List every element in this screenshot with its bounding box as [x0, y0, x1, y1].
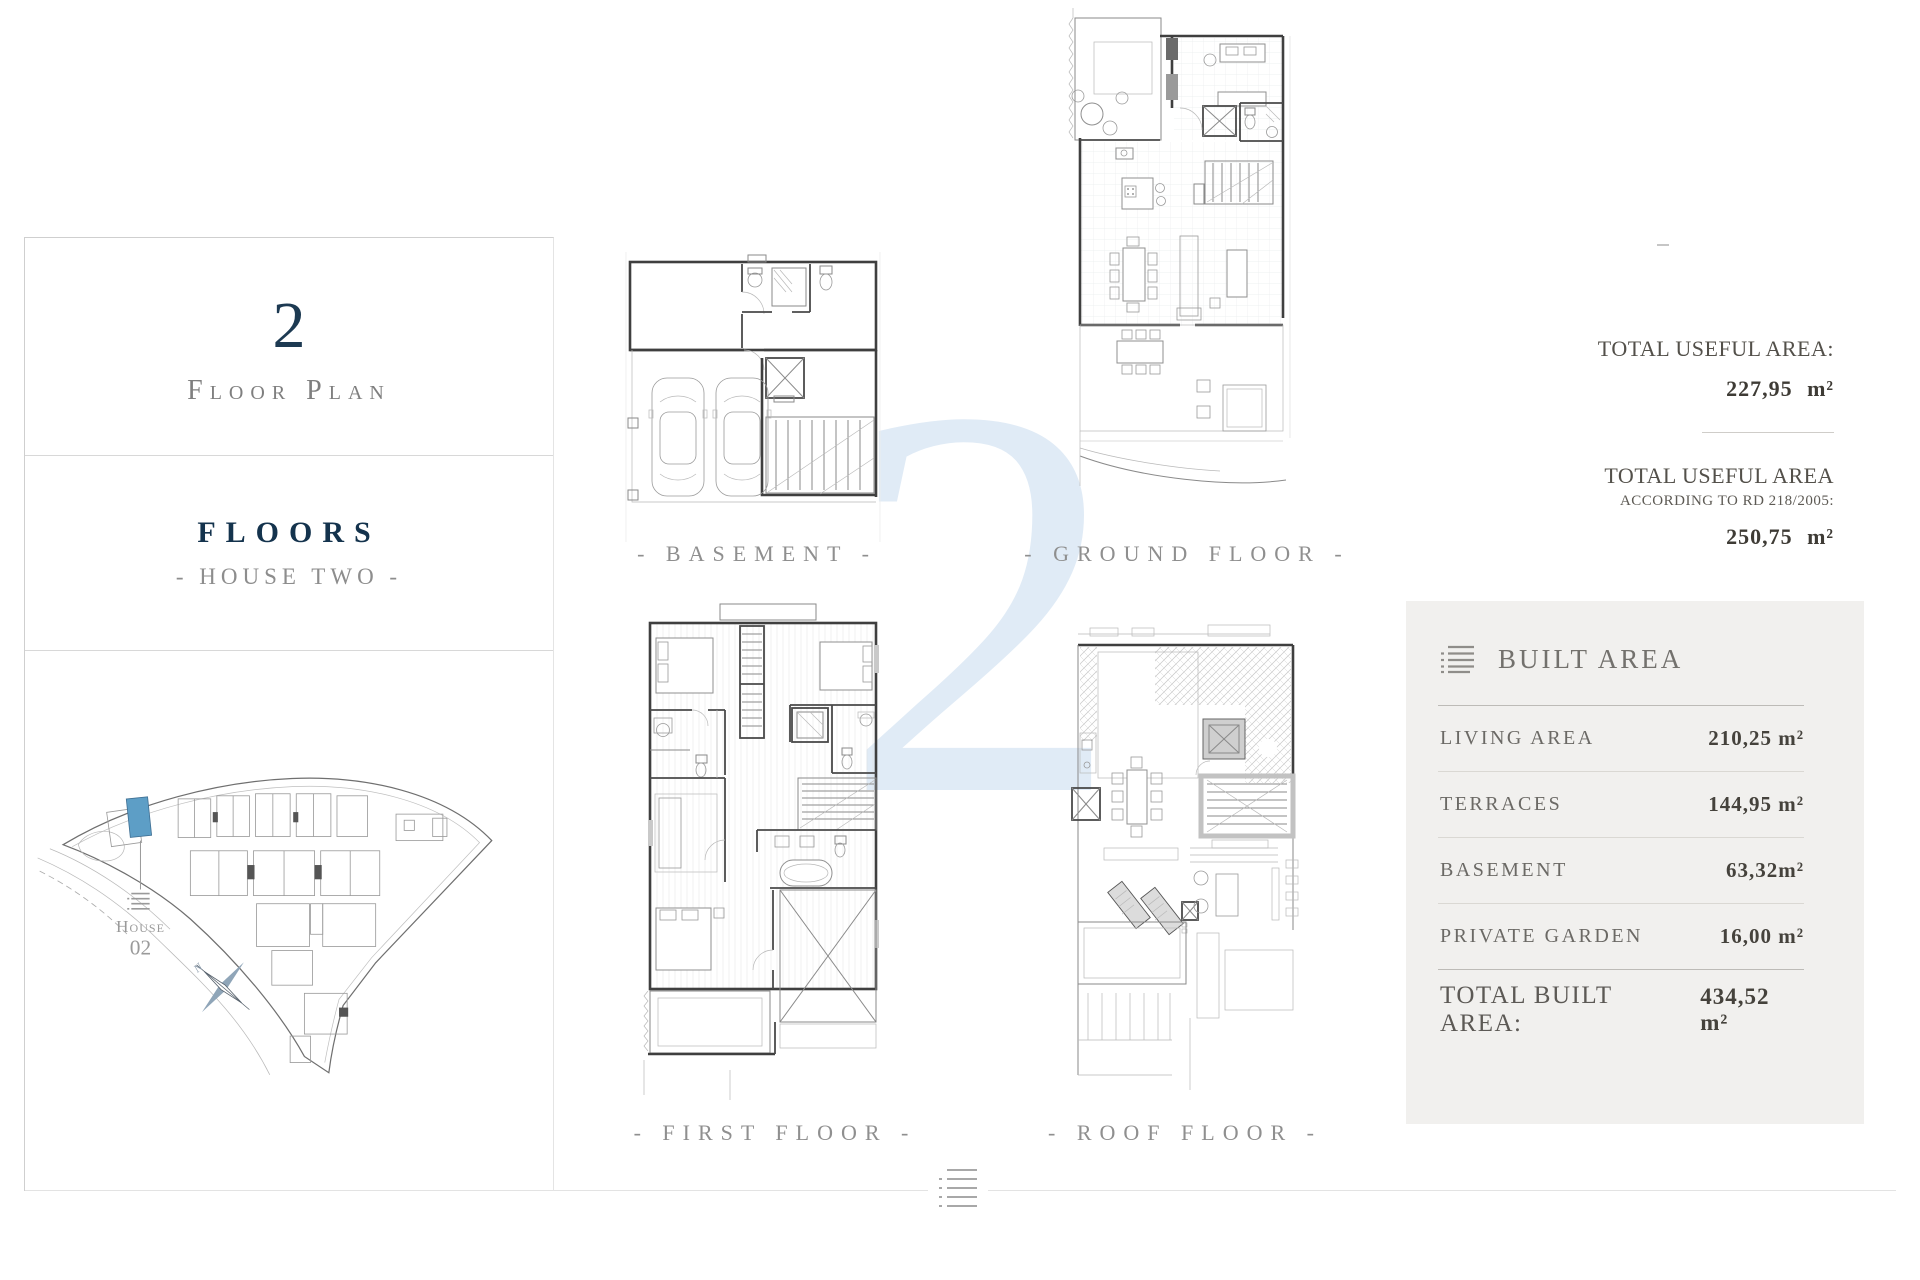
north-arrow-icon: N — [191, 960, 249, 1015]
terraces-value: 144,95 m² — [1708, 792, 1804, 817]
stats-divider — [1702, 432, 1834, 433]
site-units-row2 — [190, 851, 379, 896]
living-area-label: LIVING AREA — [1440, 727, 1595, 750]
sidebar-title-section: 2 Floor Plan — [25, 238, 553, 456]
built-area-panel: BUILT AREA LIVING AREA 210,25 m² TERRACE… — [1406, 601, 1864, 1124]
useful-area-rd-value: 250,75 m² — [1474, 524, 1834, 550]
decorative-dash — [1657, 244, 1669, 246]
built-area-row-terraces: TERRACES 144,95 m² — [1406, 772, 1864, 837]
floor-plan-subtitle: Floor Plan — [187, 375, 391, 407]
living-area-value: 210,25 m² — [1708, 726, 1804, 751]
built-area-row-basement: BASEMENT 63,32m² — [1406, 838, 1864, 903]
built-area-header: BUILT AREA — [1406, 601, 1864, 705]
private-garden-value: 16,00 m² — [1720, 924, 1804, 949]
ground-floor-label: - GROUND FLOOR - — [937, 541, 1437, 567]
total-built-area-value: 434,52 m² — [1700, 984, 1804, 1036]
house-02-highlight — [126, 797, 151, 838]
roof-floor-label: - ROOF FLOOR - — [935, 1120, 1435, 1146]
site-plan-drawing: House 02 N — [37, 751, 527, 1087]
private-garden-label: PRIVATE GARDEN — [1440, 925, 1643, 948]
built-area-row-living: LIVING AREA 210,25 m² — [1406, 706, 1864, 771]
terraces-label: TERRACES — [1440, 793, 1562, 816]
sidebar-floors-section: FLOORS - HOUSE TWO - — [25, 456, 553, 651]
total-useful-area-label: TOTAL USEFUL AREA: — [1474, 336, 1834, 362]
bottom-list-icon — [928, 1160, 988, 1218]
basement-area-label: BASEMENT — [1440, 859, 1568, 882]
sidebar-siteplan-section: House 02 N — [25, 651, 553, 1191]
roof-floor-plan — [1060, 620, 1310, 1120]
lounger-icon — [1141, 887, 1184, 934]
car-icon — [649, 378, 707, 496]
list-icon — [1440, 644, 1476, 674]
total-built-area-label: TOTAL BUILT AREA: — [1440, 982, 1700, 1038]
site-units-row3 — [257, 904, 376, 1063]
house-two-subtitle: - HOUSE TWO - — [176, 564, 402, 590]
first-floor-plan — [630, 590, 892, 1110]
useful-area-rd-sublabel: ACCORDING TO RD 218/2005: — [1474, 493, 1834, 510]
useful-area-stats: TOTAL USEFUL AREA: 227,95 m² TOTAL USEFU… — [1474, 336, 1834, 550]
basement-area-value: 63,32m² — [1726, 858, 1804, 883]
basement-floor-plan — [624, 252, 882, 552]
floor-plan-page: 2 2 Floor Plan FLOORS - HOUSE TWO - — [0, 0, 1920, 1280]
house-label: House — [116, 917, 165, 936]
floors-title: FLOORS — [197, 516, 380, 550]
ground-floor-plan — [1060, 8, 1300, 518]
total-useful-area-value: 227,95 m² — [1474, 376, 1834, 402]
site-units-row1 — [107, 794, 447, 847]
useful-area-rd-label: TOTAL USEFUL AREA — [1474, 463, 1834, 489]
house-number-title: 2 — [273, 293, 306, 359]
basement-label: - BASEMENT - — [507, 541, 1007, 567]
built-area-row-garden: PRIVATE GARDEN 16,00 m² — [1406, 904, 1864, 969]
built-area-total-row: TOTAL BUILT AREA: 434,52 m² — [1406, 970, 1864, 1050]
house-number-label: 02 — [130, 936, 151, 960]
built-area-title: BUILT AREA — [1498, 644, 1683, 675]
sidebar: 2 Floor Plan FLOORS - HOUSE TWO - — [24, 237, 554, 1191]
